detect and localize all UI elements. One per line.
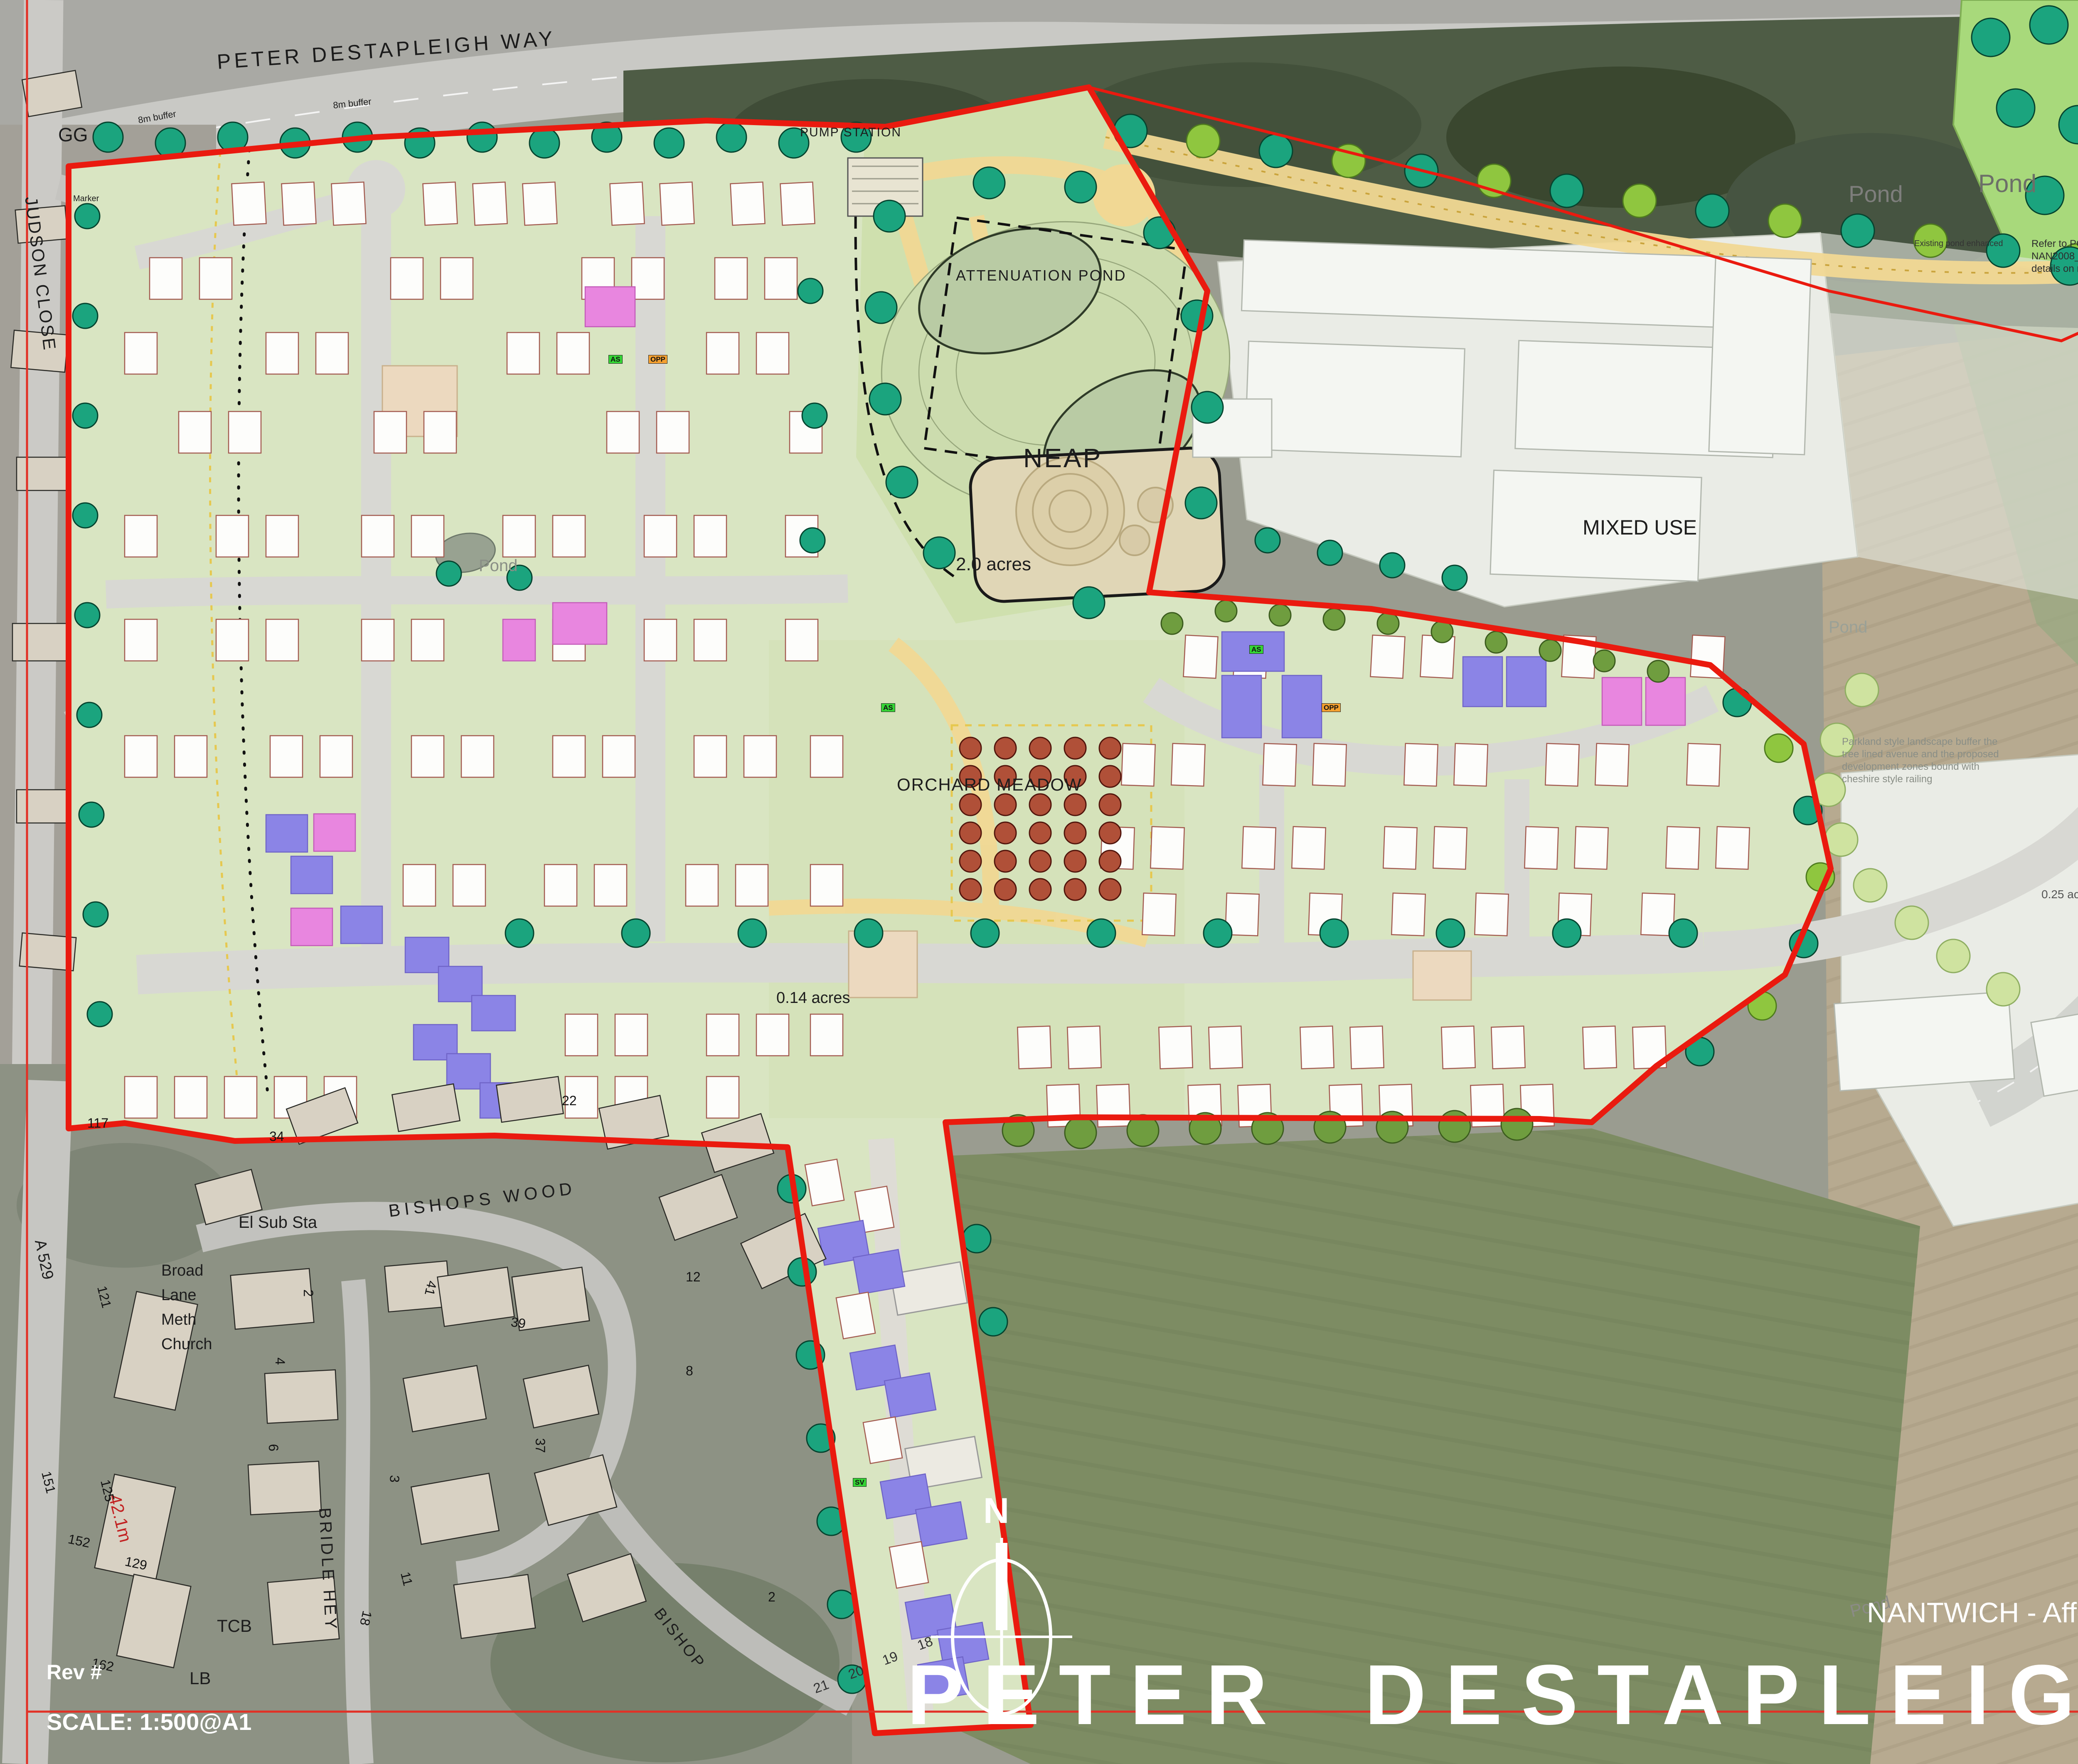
house-footprint: [694, 736, 726, 777]
tree-icon: [886, 466, 918, 498]
house-footprint: [694, 515, 726, 557]
house-number: 8: [686, 1363, 693, 1379]
tree-icon: [798, 278, 823, 303]
label-lb: LB: [190, 1668, 211, 1690]
house-footprint: [461, 736, 494, 777]
label-pond-b: Pond: [1978, 168, 2036, 199]
note-parkland-buffer: Parkland style landscape buffer the tree…: [1842, 736, 1999, 786]
tree-icon: [654, 128, 684, 158]
house-footprint: [1150, 827, 1184, 870]
tree-icon: [1269, 604, 1291, 626]
tag-sv: SV: [853, 1478, 867, 1487]
house-footprint: [853, 1249, 905, 1294]
tag-as: AS: [608, 355, 623, 364]
house-footprint: [736, 865, 768, 906]
tag-as: AS: [881, 703, 895, 712]
house-footprint: [836, 1292, 875, 1339]
house-footprint: [1475, 893, 1508, 936]
tree-icon: [1442, 565, 1467, 590]
tree-icon: [995, 879, 1016, 900]
tree-icon: [1099, 822, 1121, 844]
house-footprint: [863, 1417, 902, 1463]
tree-icon: [1029, 794, 1051, 815]
tree-icon: [73, 503, 98, 528]
existing-building: [231, 1269, 314, 1329]
tree-icon: [960, 737, 981, 759]
house-number: 2: [768, 1589, 776, 1605]
house-footprint: [780, 182, 815, 225]
tree-icon: [1064, 822, 1086, 844]
tree-icon: [1317, 540, 1342, 565]
house-footprint: [320, 736, 352, 777]
house-footprint: [1096, 1084, 1130, 1127]
tree-icon: [1669, 919, 1697, 947]
tree-icon: [1987, 973, 2020, 1006]
tree-icon: [995, 850, 1016, 872]
house-footprint: [686, 865, 718, 906]
tree-icon: [1099, 794, 1121, 815]
tree-icon: [87, 1002, 112, 1027]
tree-icon: [505, 919, 534, 947]
tree-icon: [73, 403, 98, 428]
house-number: 12: [686, 1269, 701, 1285]
house-footprint: [362, 515, 394, 557]
tree-icon: [1854, 869, 1887, 902]
rev-label: Rev #: [47, 1659, 102, 1685]
house-footprint: [1383, 827, 1417, 870]
tree-icon: [1553, 919, 1581, 947]
tree-icon: [1972, 18, 2010, 57]
label-neap: NEAP: [1023, 441, 1102, 475]
house-footprint: [544, 865, 577, 906]
tree-icon: [1064, 879, 1086, 900]
tree-icon: [1550, 174, 1583, 207]
tree-icon: [529, 128, 559, 158]
house-footprint: [1545, 744, 1579, 786]
house-footprint: [503, 515, 535, 557]
label-el-sub-sta: El Sub Sta: [239, 1212, 317, 1233]
existing-building: [437, 1267, 514, 1326]
house-footprint: [472, 995, 515, 1031]
house-footprint: [1222, 675, 1261, 738]
label-pond-a: Pond: [1849, 180, 1903, 209]
house-footprint: [403, 865, 436, 906]
house-footprint: [150, 258, 182, 299]
house-footprint: [314, 814, 355, 851]
house-footprint: [125, 1077, 157, 1118]
tree-icon: [1647, 660, 1669, 682]
tree-icon: [1845, 673, 1879, 707]
tree-icon: [83, 902, 108, 927]
house-number: 6: [266, 1444, 281, 1451]
tree-icon: [1255, 528, 1280, 553]
label-014-acres: 0.14 acres: [776, 988, 850, 1008]
house-footprint: [1391, 893, 1425, 936]
tag-as: AS: [1249, 645, 1263, 654]
tree-icon: [995, 737, 1016, 759]
house-footprint: [610, 182, 644, 225]
house-footprint: [316, 333, 348, 374]
house-number: 37: [532, 1438, 548, 1453]
tree-icon: [1377, 613, 1399, 634]
site-plan-canvas: PETER DESTAPLEIGH WAY GG Marker JUDSON C…: [0, 0, 2078, 1764]
tree-icon: [1259, 134, 1293, 168]
house-number: 2: [300, 1289, 316, 1297]
house-footprint: [1370, 635, 1405, 678]
compass-north-label: N: [983, 1489, 1009, 1534]
house-footprint: [810, 1014, 843, 1056]
map-drawing: [0, 0, 2078, 1764]
tree-icon: [1064, 794, 1086, 815]
existing-building: [265, 1370, 338, 1424]
house-footprint: [1491, 1026, 1525, 1069]
house-footprint: [765, 258, 797, 299]
house-footprint: [423, 182, 457, 225]
house-footprint: [553, 515, 585, 557]
house-footprint: [1687, 744, 1720, 786]
tree-icon: [963, 1224, 991, 1253]
tree-icon: [1064, 850, 1086, 872]
house-footprint: [424, 411, 456, 453]
tree-icon: [854, 919, 883, 947]
house-footprint: [594, 865, 627, 906]
house-footprint: [1300, 1026, 1334, 1069]
tree-icon: [1185, 487, 1217, 519]
tree-icon: [1765, 734, 1793, 762]
label-attenuation-pond: ATTENUATION POND: [956, 266, 1127, 285]
mixed-use-building: [1834, 992, 2014, 1091]
house-footprint: [1017, 1026, 1051, 1069]
tree-icon: [800, 528, 825, 553]
house-footprint: [331, 182, 366, 225]
house-footprint: [125, 333, 157, 374]
house-footprint: [585, 287, 635, 327]
house-footprint: [175, 736, 207, 777]
house-footprint: [1595, 744, 1629, 786]
existing-building: [454, 1574, 535, 1638]
house-footprint: [291, 856, 332, 894]
house-footprint: [1209, 1026, 1242, 1069]
tree-icon: [1099, 737, 1121, 759]
house-footprint: [125, 736, 157, 777]
house-footprint: [507, 333, 539, 374]
tree-icon: [716, 122, 746, 152]
tag-opp: OPP: [648, 355, 667, 364]
tree-icon: [93, 122, 123, 152]
house-footprint: [1121, 744, 1155, 786]
house-footprint: [453, 865, 485, 906]
house-footprint: [707, 1077, 739, 1118]
label-pump-station: PUMP STATION: [800, 125, 901, 140]
label-pond-c: Pond: [479, 555, 517, 576]
tree-icon: [75, 204, 100, 229]
note-pgla-drawings: Refer to PGLA Drawings NAN2008_PP01.00 s…: [2031, 238, 2078, 275]
tree-icon: [79, 802, 104, 827]
house-footprint: [615, 1014, 648, 1056]
house-footprint: [756, 333, 789, 374]
tree-icon: [1065, 1117, 1096, 1148]
house-footprint: [1524, 827, 1558, 870]
tree-icon: [1380, 553, 1405, 578]
house-footprint: [1067, 1026, 1101, 1069]
house-footprint: [216, 515, 249, 557]
tree-icon: [436, 561, 461, 586]
house-footprint: [1646, 678, 1685, 725]
house-footprint: [1159, 1026, 1192, 1069]
tree-icon: [1623, 184, 1656, 217]
house-footprint: [216, 619, 249, 661]
house-footprint: [694, 619, 726, 661]
tree-icon: [973, 167, 1005, 199]
tree-icon: [75, 603, 100, 628]
tree-icon: [1029, 850, 1051, 872]
house-footprint: [889, 1542, 928, 1588]
house-footprint: [125, 619, 157, 661]
label-broad-lane-meth-church: Broad Lane Meth Church: [161, 1259, 212, 1357]
tree-icon: [1841, 214, 1874, 247]
tree-icon: [73, 303, 98, 328]
tree-icon: [1696, 194, 1729, 227]
house-footprint: [1312, 744, 1346, 786]
tree-icon: [1065, 171, 1096, 203]
house-number: 4: [272, 1357, 288, 1365]
house-footprint: [229, 411, 261, 453]
tree-icon: [1539, 640, 1561, 661]
tree-icon: [923, 537, 955, 569]
house-footprint: [603, 736, 635, 777]
house-footprint: [607, 411, 639, 453]
label-marker: Marker: [73, 194, 99, 204]
house-footprint: [810, 865, 843, 906]
tree-icon: [1029, 879, 1051, 900]
tree-icon: [874, 200, 905, 232]
tree-icon: [1192, 392, 1223, 423]
tree-icon: [1436, 919, 1465, 947]
label-mixed-use-1: MIXED USE: [1583, 515, 1697, 541]
existing-building: [248, 1461, 321, 1515]
tree-icon: [1064, 737, 1086, 759]
tree-icon: [1593, 650, 1615, 672]
house-footprint: [744, 736, 776, 777]
tree-icon: [1187, 124, 1220, 158]
house-footprint: [1292, 827, 1325, 870]
mixed-use-building: [1245, 341, 1465, 457]
house-number: 117: [87, 1116, 108, 1131]
house-footprint: [266, 333, 298, 374]
house-footprint: [374, 411, 406, 453]
house-footprint: [916, 1502, 967, 1547]
tree-icon: [869, 383, 901, 415]
house-footprint: [657, 411, 689, 453]
tree-icon: [1320, 919, 1348, 947]
house-footprint: [644, 515, 677, 557]
house-footprint: [1454, 744, 1487, 786]
scale-label: SCALE: 1:500@A1: [47, 1707, 251, 1737]
label-gg: GG: [58, 123, 88, 147]
house-footprint: [553, 603, 607, 644]
house-number: 39: [510, 1314, 527, 1332]
house-footprint: [715, 258, 747, 299]
house-footprint: [125, 515, 157, 557]
house-footprint: [362, 619, 394, 661]
tree-icon: [1029, 737, 1051, 759]
house-footprint: [1507, 657, 1546, 707]
tree-icon: [960, 879, 981, 900]
house-footprint: [1404, 744, 1438, 786]
page-title: PETER DESTAPLEIGH WAY: [907, 1642, 2078, 1748]
house-footprint: [391, 258, 423, 299]
house-footprint: [1441, 1026, 1475, 1069]
tree-icon: [467, 122, 497, 152]
tree-icon: [1997, 89, 2035, 127]
tree-icon: [1099, 850, 1121, 872]
house-footprint: [1574, 827, 1608, 870]
tree-icon: [1181, 300, 1213, 332]
tree-icon: [960, 850, 981, 872]
house-footprint: [1463, 657, 1502, 707]
house-footprint: [266, 815, 308, 852]
tree-icon: [77, 702, 102, 727]
house-footprint: [441, 258, 473, 299]
existing-building: [12, 623, 66, 661]
house-footprint: [266, 515, 298, 557]
house-footprint: [884, 1373, 936, 1418]
house-footprint: [1263, 744, 1296, 786]
house-footprint: [522, 182, 557, 225]
tree-icon: [865, 292, 897, 323]
existing-building: [17, 790, 71, 823]
tree-icon: [1768, 204, 1802, 237]
house-footprint: [175, 1077, 207, 1118]
tree-icon: [622, 919, 650, 947]
house-footprint: [756, 1014, 789, 1056]
house-number: 3: [387, 1475, 402, 1483]
existing-building: [17, 457, 66, 490]
tree-icon: [1073, 587, 1105, 618]
house-footprint: [291, 908, 332, 946]
house-footprint: [1183, 635, 1218, 678]
tree-icon: [802, 403, 827, 428]
house-footprint: [1666, 827, 1699, 870]
label-pond-d: Pond: [1829, 617, 1867, 638]
house-footprint: [730, 182, 765, 225]
house-footprint: [281, 182, 316, 225]
house-footprint: [473, 182, 507, 225]
house-footprint: [1350, 1026, 1384, 1069]
tree-icon: [971, 919, 999, 947]
tag-opp: OPP: [1322, 703, 1341, 712]
house-footprint: [1171, 744, 1205, 786]
tree-icon: [2030, 6, 2068, 44]
house-footprint: [1433, 827, 1467, 870]
house-footprint: [1583, 1026, 1616, 1069]
house-footprint: [1242, 827, 1275, 870]
house-footprint: [565, 1014, 598, 1056]
existing-building: [496, 1077, 563, 1122]
tree-icon: [979, 1308, 1007, 1336]
tree-icon: [1099, 879, 1121, 900]
house-footprint: [785, 619, 818, 661]
tree-icon: [960, 794, 981, 815]
tree-icon: [1485, 631, 1507, 653]
tree-icon: [1087, 919, 1115, 947]
tree-icon: [1937, 939, 1970, 973]
tree-icon: [1161, 613, 1183, 634]
label-existing-pond: Existing pond enhanced: [1914, 239, 2003, 249]
tree-icon: [1439, 1111, 1470, 1142]
house-footprint: [553, 736, 585, 777]
tree-icon: [1895, 906, 1928, 939]
mixed-use-building: [1709, 256, 1811, 455]
tree-icon: [1431, 621, 1453, 643]
tree-icon: [995, 822, 1016, 844]
house-footprint: [810, 736, 843, 777]
house-footprint: [1142, 893, 1176, 936]
label-orchard-meadow: ORCHARD MEADOW: [897, 774, 1082, 796]
house-footprint: [231, 182, 266, 225]
house-footprint: [707, 1014, 739, 1056]
house-footprint: [341, 906, 382, 944]
plan-subtitle: NANTWICH - Affordable Housing Plan: [1867, 1595, 2078, 1631]
house-footprint: [224, 1077, 257, 1118]
house-footprint: [632, 258, 664, 299]
house-footprint: [411, 515, 444, 557]
house-footprint: [503, 619, 535, 661]
house-footprint: [644, 619, 677, 661]
label-tcb: TCB: [217, 1615, 252, 1637]
tree-icon: [1477, 164, 1511, 197]
house-footprint: [557, 333, 589, 374]
label-2-acres: 2.0 acres: [956, 553, 1031, 576]
house-footprint: [199, 258, 232, 299]
tree-icon: [1029, 822, 1051, 844]
house-number: 22: [562, 1093, 577, 1109]
house-footprint: [707, 333, 739, 374]
label-025-acres: 0.25 acres: [2041, 887, 2078, 902]
house-footprint: [805, 1159, 844, 1206]
house-number: 34: [269, 1129, 284, 1144]
house-footprint: [1282, 675, 1322, 738]
tree-icon: [1501, 1109, 1533, 1140]
tree-icon: [1204, 919, 1232, 947]
house-footprint: [266, 619, 298, 661]
house-footprint: [1716, 827, 1749, 870]
tree-icon: [1099, 766, 1121, 787]
house-footprint: [1602, 678, 1642, 725]
house-footprint: [411, 619, 444, 661]
tree-icon: [995, 794, 1016, 815]
house-footprint: [411, 736, 444, 777]
tree-icon: [1215, 600, 1237, 622]
tree-icon: [1323, 609, 1345, 630]
house-footprint: [179, 411, 211, 453]
tree-icon: [738, 919, 766, 947]
tree-icon: [960, 822, 981, 844]
house-footprint: [270, 736, 303, 777]
house-footprint: [660, 182, 694, 225]
